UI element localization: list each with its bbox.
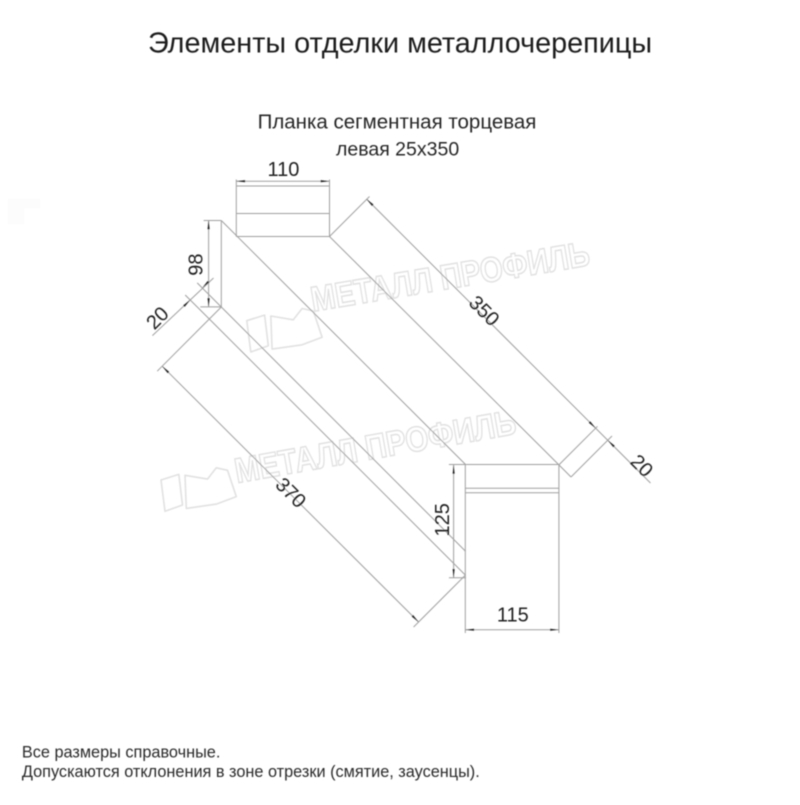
svg-text:Планка сегментная торцевая: Планка сегментная торцевая bbox=[258, 111, 537, 134]
svg-text:Все размеры справочные.: Все размеры справочные. bbox=[22, 744, 220, 762]
svg-text:125: 125 bbox=[432, 503, 454, 536]
svg-text:98: 98 bbox=[186, 253, 208, 275]
svg-text:115: 115 bbox=[497, 605, 529, 627]
svg-text:левая 25х350: левая 25х350 bbox=[336, 139, 459, 161]
svg-text:Допускаются отклонения в зоне: Допускаются отклонения в зоне отрезки (с… bbox=[22, 763, 480, 781]
svg-text:Элементы отделки металлочерепи: Элементы отделки металлочерепицы bbox=[148, 28, 652, 60]
svg-text:110: 110 bbox=[267, 159, 299, 181]
